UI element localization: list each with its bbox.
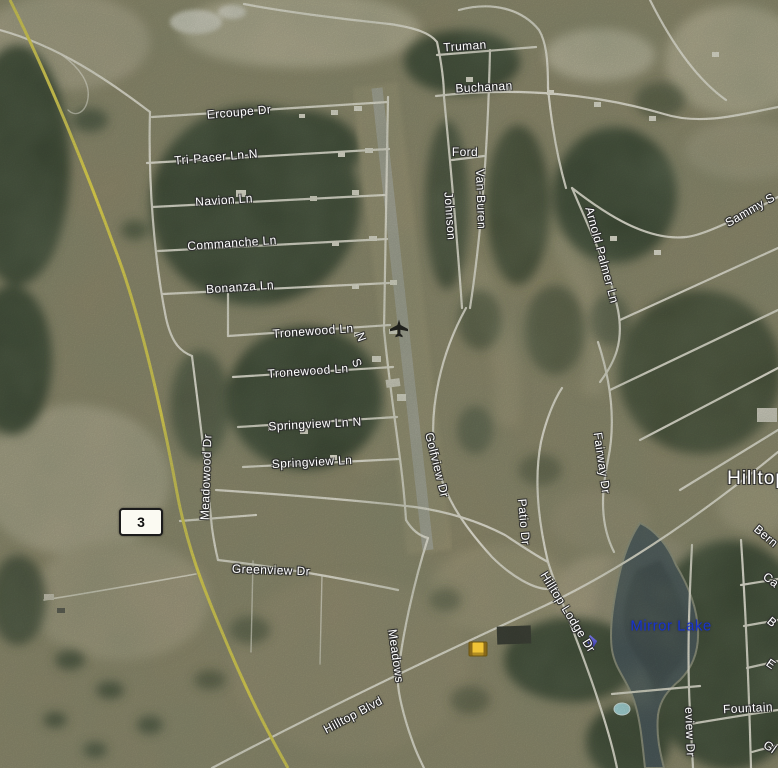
route-shield-3: 3 [119,508,163,536]
satellite-map[interactable]: 3 TrumanBuchananErcoupe DrTri-Pacer Ln-N… [0,0,778,768]
satellite-imagery [0,0,778,768]
